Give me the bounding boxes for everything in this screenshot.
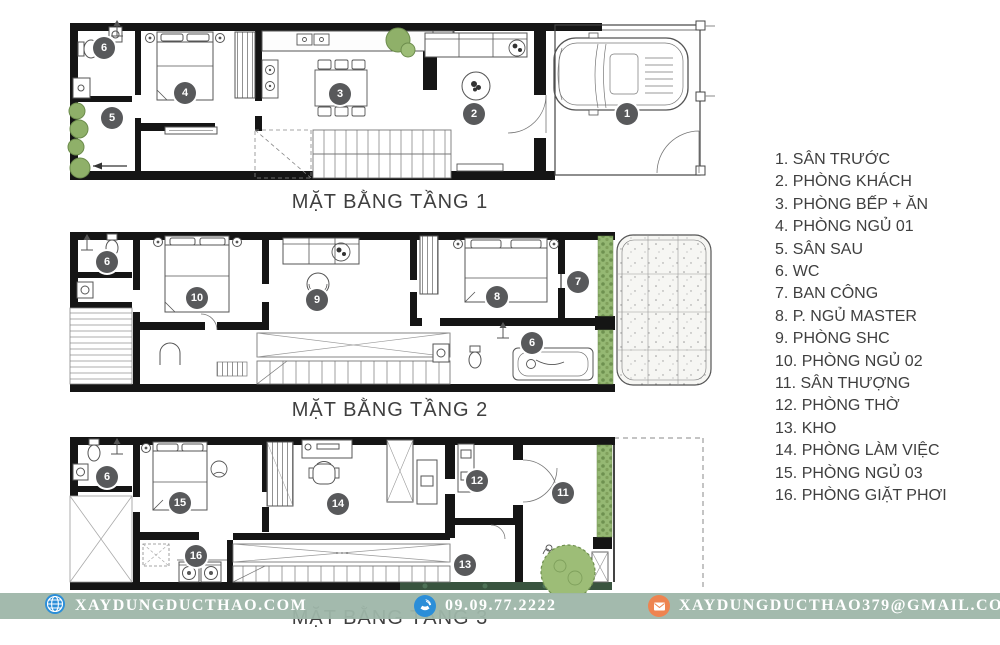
globe-icon [44,593,66,620]
legend-item-7: 7. BAN CÔNG [775,283,947,305]
footer-email: XAYDUNGDUCTHAO379@GMAIL.COM [679,597,1000,615]
room-badge-13: 13 [454,554,476,576]
legend-item-4: 4. PHÒNG NGỦ 01 [775,216,947,238]
phone-icon [414,595,436,617]
footer-contact-band: XAYDUNGDUCTHAO.COM 09.09.77.2222 XAYDUNG… [0,593,1000,619]
room-badge-15: 15 [169,492,191,514]
room-badge-11: 11 [552,482,574,504]
legend-item-14: 14. PHÒNG LÀM VIỆC [775,440,947,462]
room-badge-7: 7 [567,271,589,293]
room-badge-10: 10 [186,287,208,309]
room-badge-9: 9 [306,289,328,311]
legend-item-13: 13. KHO [775,418,947,440]
floor-plan-2: 6109876 [65,226,715,394]
room-badge-1: 1 [616,103,638,125]
legend-list: 1. SÂN TRƯỚC2. PHÒNG KHÁCH3. PHÒNG BẾP +… [775,149,947,508]
legend-item-1: 1. SÂN TRƯỚC [775,149,947,171]
legend-item-3: 3. PHÒNG BẾP + ĂN [775,194,947,216]
legend-item-12: 12. PHÒNG THỜ [775,395,947,417]
legend-item-6: 6. WC [775,261,947,283]
floor-plan-1: 654321 [65,8,715,188]
legend-item-11: 11. SÂN THƯỢNG [775,373,947,395]
legend-item-8: 8. P. NGỦ MASTER [775,306,947,328]
floor-1-title: MẶT BẰNG TẦNG 1 [65,191,715,214]
room-badge-6: 6 [93,37,115,59]
room-badge-6: 6 [96,466,118,488]
room-badge-16: 16 [185,545,207,567]
footer-website: XAYDUNGDUCTHAO.COM [75,597,307,615]
room-badge-14: 14 [327,493,349,515]
legend-item-10: 10. PHÒNG NGỦ 02 [775,351,947,373]
room-badge-6: 6 [96,251,118,273]
footer-phone: 09.09.77.2222 [445,597,557,615]
legend-item-16: 16. PHÒNG GIẶT PHƠI [775,485,947,507]
floor-plan-2-drawing [65,226,715,394]
legend-item-2: 2. PHÒNG KHÁCH [775,171,947,193]
room-badge-5: 5 [101,107,123,129]
email-icon [648,595,670,617]
footer-phone-group: 09.09.77.2222 [414,593,557,619]
floor-plan-3: 6151614121311 [65,432,715,594]
room-badge-12: 12 [466,470,488,492]
flyer-canvas: 654321 MẶT BẰNG TẦNG 1 [0,0,1000,645]
room-badge-6: 6 [521,332,543,354]
legend-item-15: 15. PHÒNG NGỦ 03 [775,463,947,485]
footer-website-group: XAYDUNGDUCTHAO.COM [44,593,307,619]
room-badge-3: 3 [329,83,351,105]
legend-item-9: 9. PHÒNG SHC [775,328,947,350]
room-badge-8: 8 [486,286,508,308]
floor-plan-1-drawing [65,8,715,188]
room-badge-2: 2 [463,103,485,125]
room-badge-4: 4 [174,82,196,104]
footer-email-group: XAYDUNGDUCTHAO379@GMAIL.COM [648,593,1000,619]
floor-plan-3-drawing [65,432,715,594]
legend-item-5: 5. SÂN SAU [775,239,947,261]
floor-2-title: MẶT BẰNG TẦNG 2 [65,399,715,422]
